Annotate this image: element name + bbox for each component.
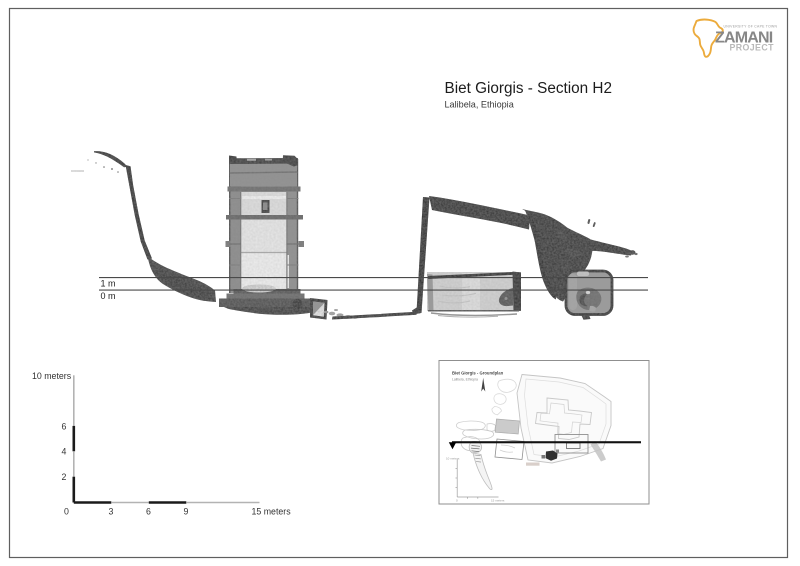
svg-text:15 meters: 15 meters xyxy=(491,499,505,503)
svg-text:15 meters: 15 meters xyxy=(252,507,292,517)
svg-text:1 m: 1 m xyxy=(101,279,116,289)
svg-text:PROJECT: PROJECT xyxy=(730,43,775,53)
svg-text:6: 6 xyxy=(62,421,67,431)
svg-text:10 meters: 10 meters xyxy=(446,457,460,461)
svg-text:9: 9 xyxy=(184,507,189,517)
svg-text:0: 0 xyxy=(64,507,69,517)
svg-text:Lalibela, Ethiopia: Lalibela, Ethiopia xyxy=(452,378,478,382)
svg-text:Biet Giorgis - Section H2: Biet Giorgis - Section H2 xyxy=(445,80,612,97)
svg-text:3: 3 xyxy=(109,507,114,517)
svg-text:UNIVERSITY OF CAPE TOWN: UNIVERSITY OF CAPE TOWN xyxy=(724,24,778,28)
svg-text:Biet Giorgis - Groundplan: Biet Giorgis - Groundplan xyxy=(452,371,504,376)
svg-text:2: 2 xyxy=(62,472,67,482)
svg-text:4: 4 xyxy=(62,447,67,457)
svg-text:0 m: 0 m xyxy=(101,291,116,301)
svg-text:10 meters: 10 meters xyxy=(32,371,72,381)
svg-text:Lalibela, Ethiopia: Lalibela, Ethiopia xyxy=(445,99,515,109)
svg-text:6: 6 xyxy=(146,507,151,517)
